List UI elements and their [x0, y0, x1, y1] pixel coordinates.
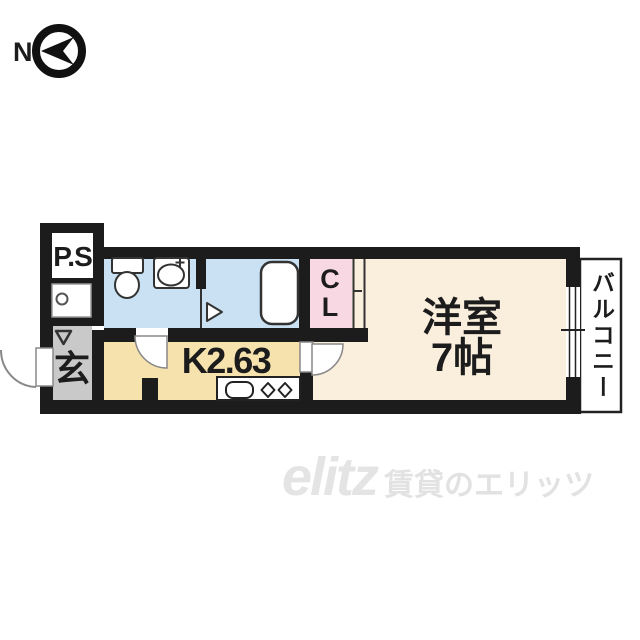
wall-right-upper: [566, 259, 580, 287]
compass: N: [13, 28, 82, 74]
kitchen-counter: [217, 377, 300, 400]
kitchen-sink: [226, 382, 253, 398]
wall-below-closet: [299, 328, 368, 342]
floorplan-page: N P.S: [0, 0, 640, 640]
compass-north-label: N: [13, 37, 33, 67]
watermark-text: 賃貸のエリッツ: [384, 460, 594, 504]
closet-label-line1: C: [320, 264, 340, 294]
front-door: [1, 348, 53, 387]
wall-bath-closet: [299, 259, 310, 328]
kitchen-label: K2.63: [182, 340, 271, 381]
wash-basin: [154, 258, 189, 288]
wall-kitchen-stub: [142, 378, 158, 400]
watermark-logo: elitz: [282, 446, 377, 508]
wall-kitchen-living: [300, 372, 313, 400]
watermark: elitz 賃貸のエリッツ: [282, 446, 594, 508]
living-room-label-line1: 洋室: [422, 296, 502, 340]
closet-label-line2: L: [322, 292, 339, 322]
wall-bottom: [40, 400, 581, 414]
toilet-bowl: [115, 272, 139, 298]
floorplan-svg: N P.S: [0, 0, 640, 640]
living-door-leaf: [300, 342, 313, 372]
toilet-tank: [112, 258, 143, 273]
living-room-label-line2: 7帖: [431, 336, 493, 380]
entrance-label: 玄: [54, 348, 90, 389]
balcony-window-gap: [566, 287, 580, 377]
pipe-space-label: P.S: [53, 241, 92, 272]
front-door-leaf: [36, 348, 53, 386]
wall-right-lower: [566, 377, 580, 400]
wall-washroom-bath: [196, 258, 206, 289]
front-door-swing-arc: [1, 350, 36, 387]
laundry-drain-icon: [57, 294, 68, 305]
balcony-label: バルコニー: [582, 263, 620, 409]
wall-entrance-kitchen: [92, 330, 104, 400]
bathtub: [261, 262, 298, 324]
